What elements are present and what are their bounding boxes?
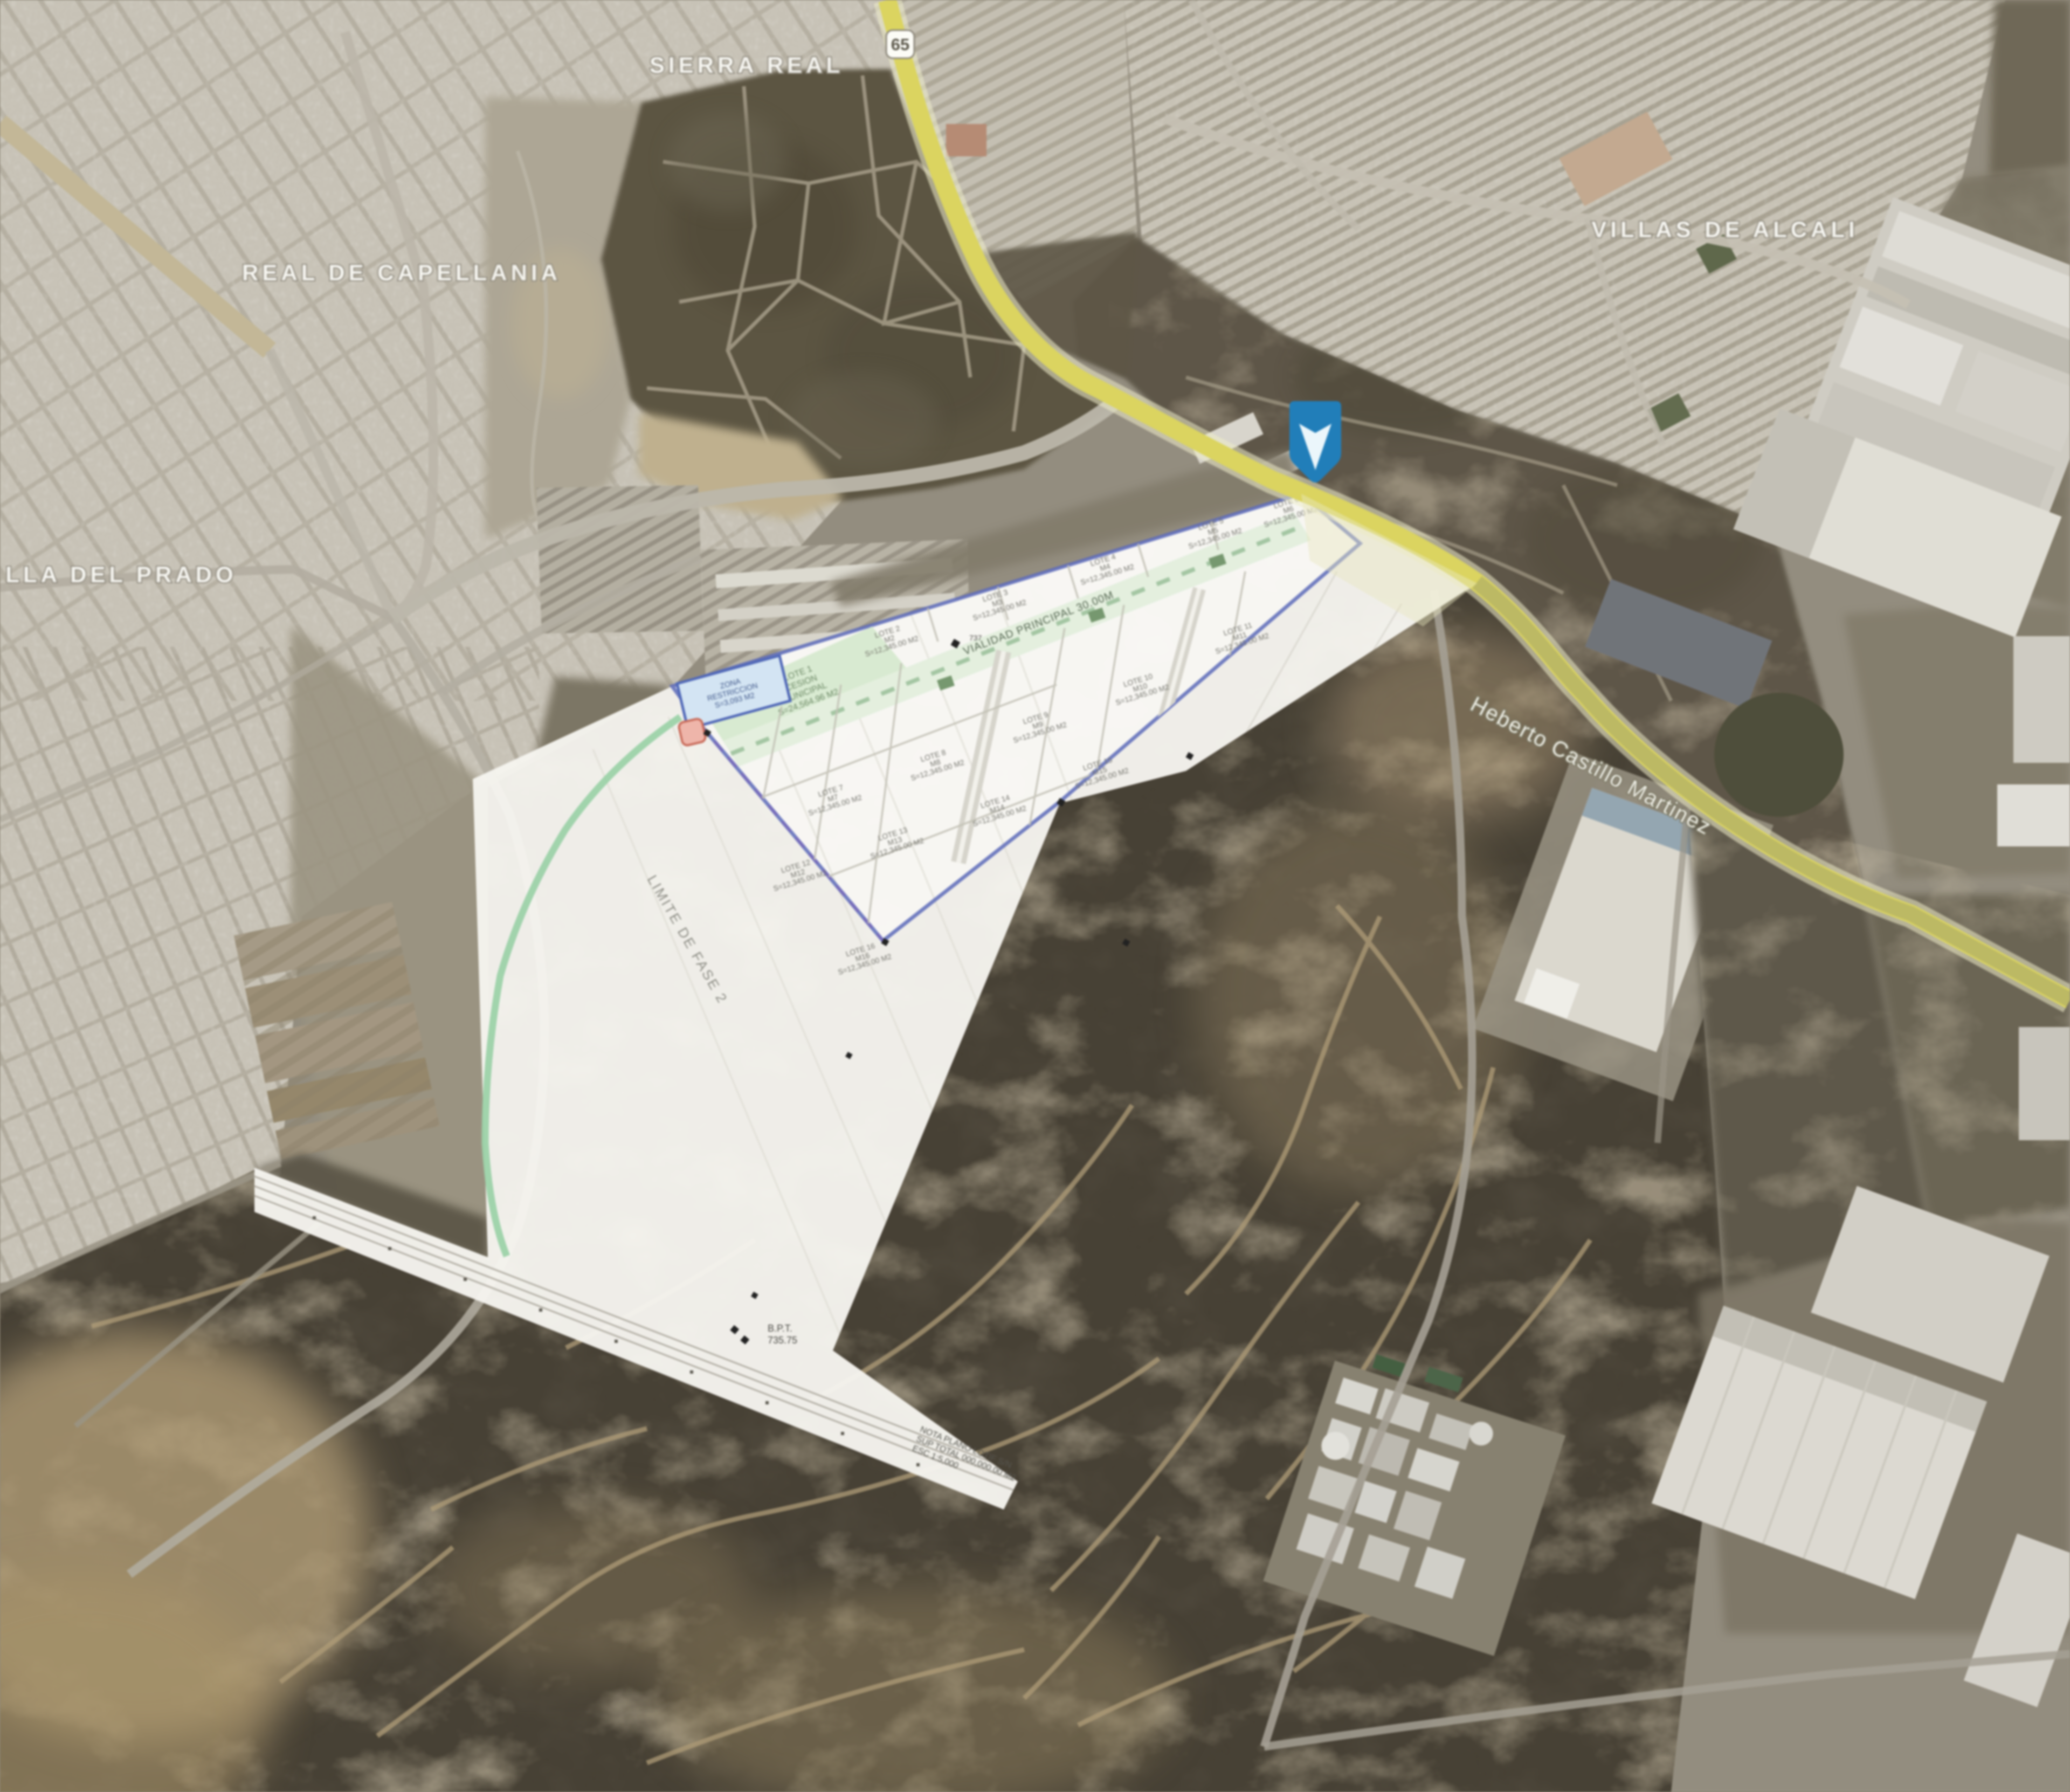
svg-text:VILLAS DE ALCALI: VILLAS DE ALCALI [1591,217,1858,242]
svg-text:65: 65 [891,35,909,54]
svg-text:LLA DEL PRADO: LLA DEL PRADO [5,562,237,587]
svg-text:735.75: 735.75 [768,1335,797,1346]
svg-text:REAL DE CAPELLANIA: REAL DE CAPELLANIA [242,260,561,285]
svg-text:SIERRA REAL: SIERRA REAL [650,52,844,78]
svg-text:B.P.T.: B.P.T. [768,1323,792,1334]
svg-text:737: 737 [969,633,982,642]
